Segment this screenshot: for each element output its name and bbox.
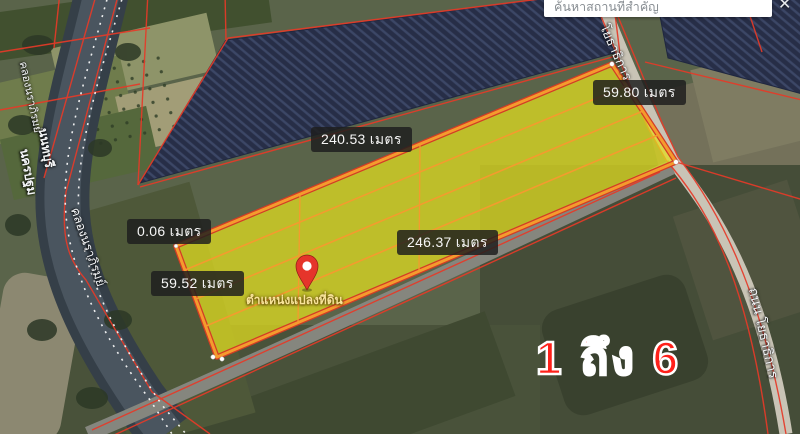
measurement-right-side: 59.80 เมตร bbox=[593, 80, 686, 105]
plot-range-annotation: 1 ถึง 6 bbox=[536, 322, 681, 395]
search-input[interactable] bbox=[544, 0, 772, 17]
measurement-left-side: 59.52 เมตร bbox=[151, 271, 244, 296]
pin-caption: ตำแหน่งแปลงที่ดิน bbox=[246, 291, 343, 310]
measurement-top-side: 240.53 เมตร bbox=[311, 127, 412, 152]
close-icon[interactable]: ✕ bbox=[778, 0, 791, 13]
measurement-left-corner: 0.06 เมตร bbox=[127, 219, 211, 244]
map-viewport[interactable]: ✕ 240.53 เมตร 59.80 เมตร 0.06 เมตร 246.3… bbox=[0, 0, 800, 434]
measurement-bottom-side: 246.37 เมตร bbox=[397, 230, 498, 255]
